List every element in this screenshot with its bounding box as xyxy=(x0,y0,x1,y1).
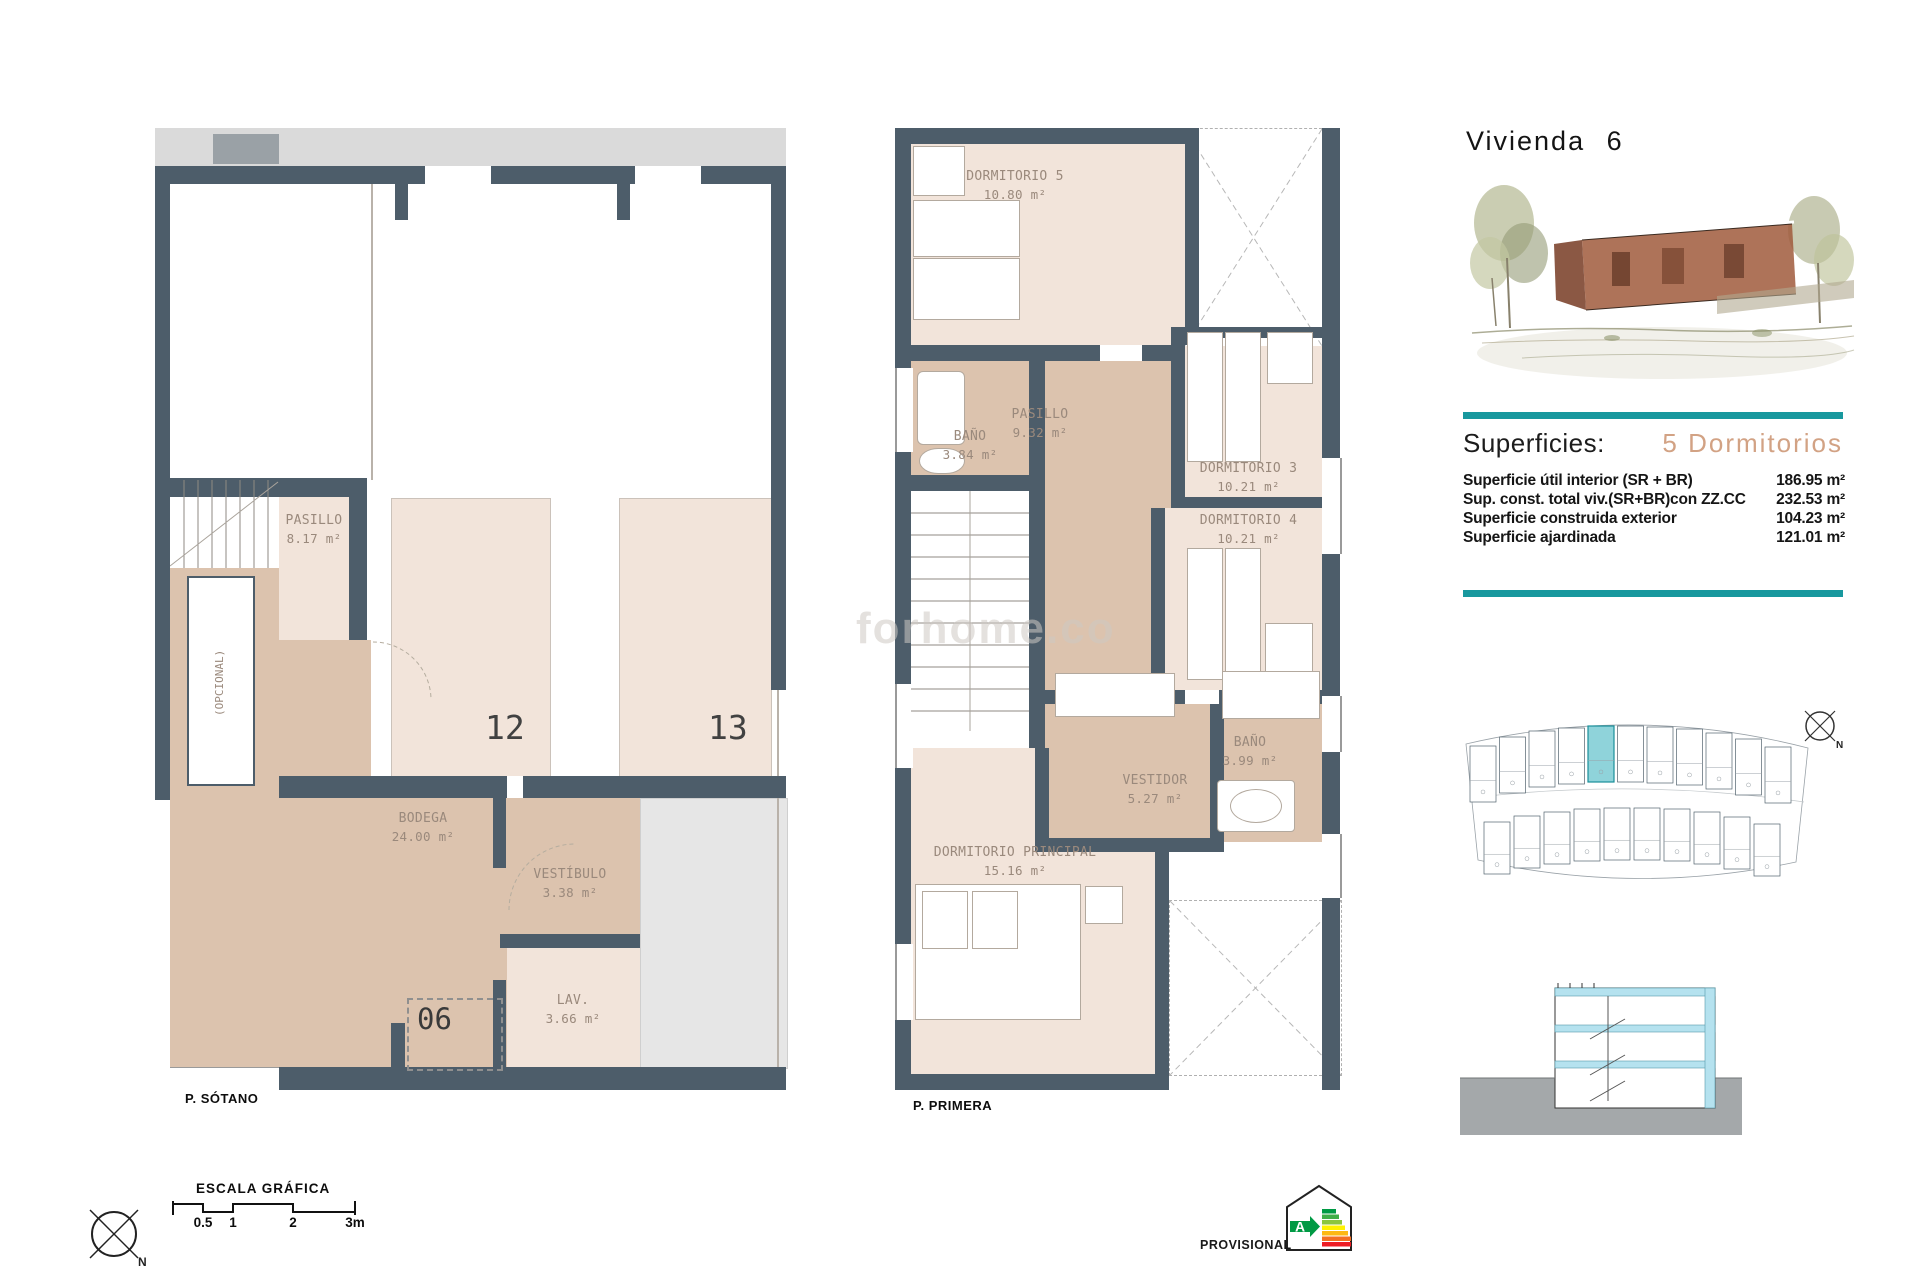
white xyxy=(425,166,491,184)
void-upper xyxy=(1185,128,1322,346)
ar: 3.38 m² xyxy=(495,884,645,902)
ar: 10.21 m² xyxy=(1175,478,1322,496)
plan-name-sotano: P. SÓTANO xyxy=(185,1091,258,1106)
label-dormitorio3: DORMITORIO 310.21 m² xyxy=(1175,460,1322,496)
w xyxy=(1151,508,1165,690)
g xyxy=(1470,726,1791,876)
scale-tick: 2 xyxy=(289,1215,297,1230)
span: DORMITORIO 4 xyxy=(1175,512,1322,530)
void-lower xyxy=(1169,900,1342,1076)
fixture-bathtub xyxy=(1217,780,1295,832)
w xyxy=(617,184,630,220)
scale-tick: 0.5 xyxy=(194,1215,213,1230)
rect xyxy=(1574,809,1600,861)
rect xyxy=(1736,739,1762,795)
rect xyxy=(1724,244,1744,278)
w xyxy=(1155,852,1169,1074)
white xyxy=(1322,458,1342,554)
w xyxy=(895,1074,1169,1090)
rect xyxy=(1612,252,1630,286)
roof-band-dark xyxy=(213,134,279,164)
room-13 xyxy=(619,498,772,778)
rect xyxy=(1500,737,1526,793)
teal-divider-top xyxy=(1463,412,1843,419)
g xyxy=(1470,185,1548,328)
w xyxy=(895,128,911,1074)
ar: 3.84 m² xyxy=(915,446,1025,464)
span: VESTIDOR xyxy=(1095,772,1215,790)
ar: 24.00 m² xyxy=(348,828,498,846)
rect xyxy=(1322,1231,1348,1236)
rect xyxy=(1754,824,1780,876)
ellipse xyxy=(1604,335,1620,341)
plan-sotano: (OPCIONAL) 06 PASILLO8.17 m² BODEGA24.00… xyxy=(155,128,790,1090)
superficie-row: Superficie ajardinada121.01 m² xyxy=(1463,528,1845,547)
w xyxy=(1185,128,1199,345)
scale-title: ESCALA GRÁFICA xyxy=(196,1181,330,1196)
site-plan xyxy=(1462,710,1812,908)
span: DORMITORIO PRINCIPAL xyxy=(905,844,1125,862)
furniture-bed xyxy=(1225,332,1261,462)
path xyxy=(373,642,431,700)
rect xyxy=(1322,1237,1351,1242)
thin xyxy=(371,184,373,480)
rect xyxy=(1588,726,1614,782)
span: 121.01 m² xyxy=(1776,528,1845,547)
rect xyxy=(1514,816,1540,868)
w xyxy=(911,345,1185,361)
w xyxy=(279,776,786,798)
label-bodega: BODEGA24.00 m² xyxy=(348,810,498,846)
rect xyxy=(1544,812,1570,864)
white xyxy=(1185,690,1219,704)
provisional-label: PROVISIONAL xyxy=(1200,1238,1292,1252)
span: PASILLO xyxy=(259,512,369,530)
unit-number-06: 06 xyxy=(417,1002,452,1036)
superficies-table: Superficie útil interior (SR + BR)186.95… xyxy=(1463,471,1845,547)
rect xyxy=(1322,1226,1345,1231)
room-12 xyxy=(391,498,551,778)
room-pasillo2b xyxy=(1035,508,1151,690)
label-dormitorio5: DORMITORIO 510.80 m² xyxy=(930,168,1100,204)
bedroom-type-label: 5 Dormitorios xyxy=(1662,428,1843,459)
opcional-label: (OPCIONAL) xyxy=(213,618,226,748)
furniture-bed xyxy=(1225,548,1261,680)
ar: 5.27 m² xyxy=(1095,790,1215,808)
rect xyxy=(1559,728,1585,784)
white xyxy=(507,776,523,798)
superficie-row: Sup. const. total viv.(SR+BR)con ZZ.CC23… xyxy=(1463,490,1845,509)
span: DORMITORIO 3 xyxy=(1175,460,1322,478)
span: VESTÍBULO xyxy=(495,866,645,884)
ar: 3.99 m² xyxy=(1195,752,1305,770)
w xyxy=(500,934,640,948)
scale-tick: 3m xyxy=(345,1215,365,1230)
rect xyxy=(1555,1061,1715,1068)
white xyxy=(170,1067,279,1082)
svg xyxy=(1170,901,1341,1075)
ellipse xyxy=(1470,237,1510,289)
span: 186.95 m² xyxy=(1776,471,1845,490)
room-fill xyxy=(279,640,371,776)
w xyxy=(391,1023,405,1069)
label-pasillo-sotano: PASILLO8.17 m² xyxy=(259,512,369,548)
room-number-12: 12 xyxy=(485,708,525,747)
superficies-label: Superficies: xyxy=(1463,428,1605,459)
abs xyxy=(922,891,968,949)
rect xyxy=(1694,812,1720,864)
w xyxy=(1035,748,1049,852)
label-dormitorio-principal: DORMITORIO PRINCIPAL15.16 m² xyxy=(905,844,1125,880)
rect xyxy=(1634,808,1660,860)
white xyxy=(1322,834,1342,898)
rect xyxy=(1555,988,1715,996)
text: A xyxy=(1295,1219,1305,1235)
unit-06-box: 06 xyxy=(407,998,503,1071)
ellipse xyxy=(1477,327,1847,379)
span: Superficie construida exterior xyxy=(1463,509,1677,528)
rect xyxy=(1662,248,1684,284)
furniture-wardrobe xyxy=(1222,671,1320,719)
span: BAÑO xyxy=(1195,734,1305,752)
north-arrow-icon: N xyxy=(1800,706,1848,754)
label-vestibulo: VESTÍBULO3.38 m² xyxy=(495,866,645,902)
ellipse xyxy=(1814,234,1854,286)
furniture-bed-principal xyxy=(915,884,1081,1020)
white xyxy=(635,166,701,184)
house-sketch-image xyxy=(1462,168,1857,388)
span: Superficie ajardinada xyxy=(1463,528,1616,547)
w xyxy=(911,475,1045,491)
rect xyxy=(1604,808,1630,860)
polygon xyxy=(1554,240,1586,310)
rect xyxy=(1647,727,1673,783)
g xyxy=(1185,129,1322,346)
path xyxy=(173,1204,355,1212)
w xyxy=(1322,1028,1340,1090)
ar: 9.32 m² xyxy=(990,424,1090,442)
ar: 10.21 m² xyxy=(1175,530,1322,548)
label-vestidor: VESTIDOR5.27 m² xyxy=(1095,772,1215,808)
shaft-opcional: (OPCIONAL) xyxy=(187,576,255,786)
span: PASILLO xyxy=(990,406,1090,424)
ellipse xyxy=(1752,329,1772,337)
white xyxy=(895,944,913,1020)
terrace-gray xyxy=(640,798,788,1069)
rect xyxy=(1555,988,1715,1108)
rect xyxy=(1664,809,1690,861)
north-arrow-icon: N xyxy=(84,1204,152,1272)
rect xyxy=(1322,1209,1336,1214)
line xyxy=(1170,901,1341,1075)
line xyxy=(1185,129,1322,346)
ar: 8.17 m² xyxy=(259,530,369,548)
w xyxy=(1171,497,1322,508)
abs xyxy=(1230,789,1282,823)
w xyxy=(395,184,408,220)
span: Superficie útil interior (SR + BR) xyxy=(1463,471,1693,490)
text: N xyxy=(138,1255,147,1269)
w xyxy=(895,128,1195,144)
rect xyxy=(1705,988,1715,1108)
span: 232.53 m² xyxy=(1776,490,1845,509)
door-arc xyxy=(371,640,435,704)
furniture-bed xyxy=(1187,332,1223,462)
furniture-bed xyxy=(1187,548,1223,680)
ar: 3.66 m² xyxy=(518,1010,628,1028)
span: LAV. xyxy=(518,992,628,1010)
svg xyxy=(1185,129,1322,346)
room-number-13: 13 xyxy=(708,708,748,747)
section-drawing xyxy=(1460,983,1750,1138)
line xyxy=(1185,129,1322,346)
g xyxy=(1558,983,1594,988)
rect xyxy=(1677,729,1703,785)
furniture-closet xyxy=(1267,332,1313,384)
superficie-row: Superficie útil interior (SR + BR)186.95… xyxy=(1463,471,1845,490)
watermark: forhome.co xyxy=(856,604,1116,654)
thin xyxy=(777,690,779,1070)
rect xyxy=(1555,1025,1715,1032)
room-vestidor xyxy=(1035,704,1210,838)
furniture-nightstand xyxy=(1085,886,1123,924)
label-pasillo-primera: PASILLO9.32 m² xyxy=(990,406,1090,442)
scale-tick: 1 xyxy=(229,1215,237,1230)
rect xyxy=(1724,817,1750,869)
rect xyxy=(1322,1215,1339,1220)
rect xyxy=(1322,1220,1342,1225)
span: DORMITORIO 5 xyxy=(930,168,1100,186)
text: N xyxy=(1836,740,1843,751)
white xyxy=(895,368,913,452)
floorplan-sheet: (OPCIONAL) 06 PASILLO8.17 m² BODEGA24.00… xyxy=(0,0,1920,1280)
w xyxy=(771,166,786,690)
span: 104.23 m² xyxy=(1776,509,1845,528)
white xyxy=(1100,345,1142,361)
furniture-bed xyxy=(913,258,1020,320)
label-lav: LAV.3.66 m² xyxy=(518,992,628,1028)
rect xyxy=(1484,822,1510,874)
white xyxy=(1322,696,1342,752)
label-dormitorio4: DORMITORIO 410.21 m² xyxy=(1175,512,1322,548)
w xyxy=(279,1067,786,1090)
page-title: Vivienda 6 xyxy=(1466,126,1624,157)
ar: 15.16 m² xyxy=(905,862,1125,880)
rect xyxy=(1470,746,1496,802)
superficies-header: Superficies: 5 Dormitorios xyxy=(1463,428,1843,459)
span: BODEGA xyxy=(348,810,498,828)
abs xyxy=(972,891,1018,949)
g xyxy=(1170,901,1341,1075)
rect xyxy=(1765,747,1791,803)
plan-name-primera: P. PRIMERA xyxy=(913,1098,992,1113)
room-dormp-a xyxy=(911,748,1035,858)
furniture-bed xyxy=(913,200,1020,257)
span: Sup. const. total viv.(SR+BR)con ZZ.CC xyxy=(1463,490,1746,509)
rect xyxy=(1706,733,1732,789)
label-bano2: BAÑO3.99 m² xyxy=(1195,734,1305,770)
energy-rating-icon: A xyxy=(1284,1183,1354,1253)
rect xyxy=(1322,1242,1351,1247)
furniture-wardrobe xyxy=(1055,673,1175,717)
superficie-row: Superficie construida exterior104.23 m² xyxy=(1463,509,1845,528)
teal-divider-bottom xyxy=(1463,590,1843,597)
rect xyxy=(1529,731,1555,787)
w xyxy=(1322,128,1340,370)
ar: 10.80 m² xyxy=(930,186,1100,204)
rect xyxy=(1618,726,1644,782)
